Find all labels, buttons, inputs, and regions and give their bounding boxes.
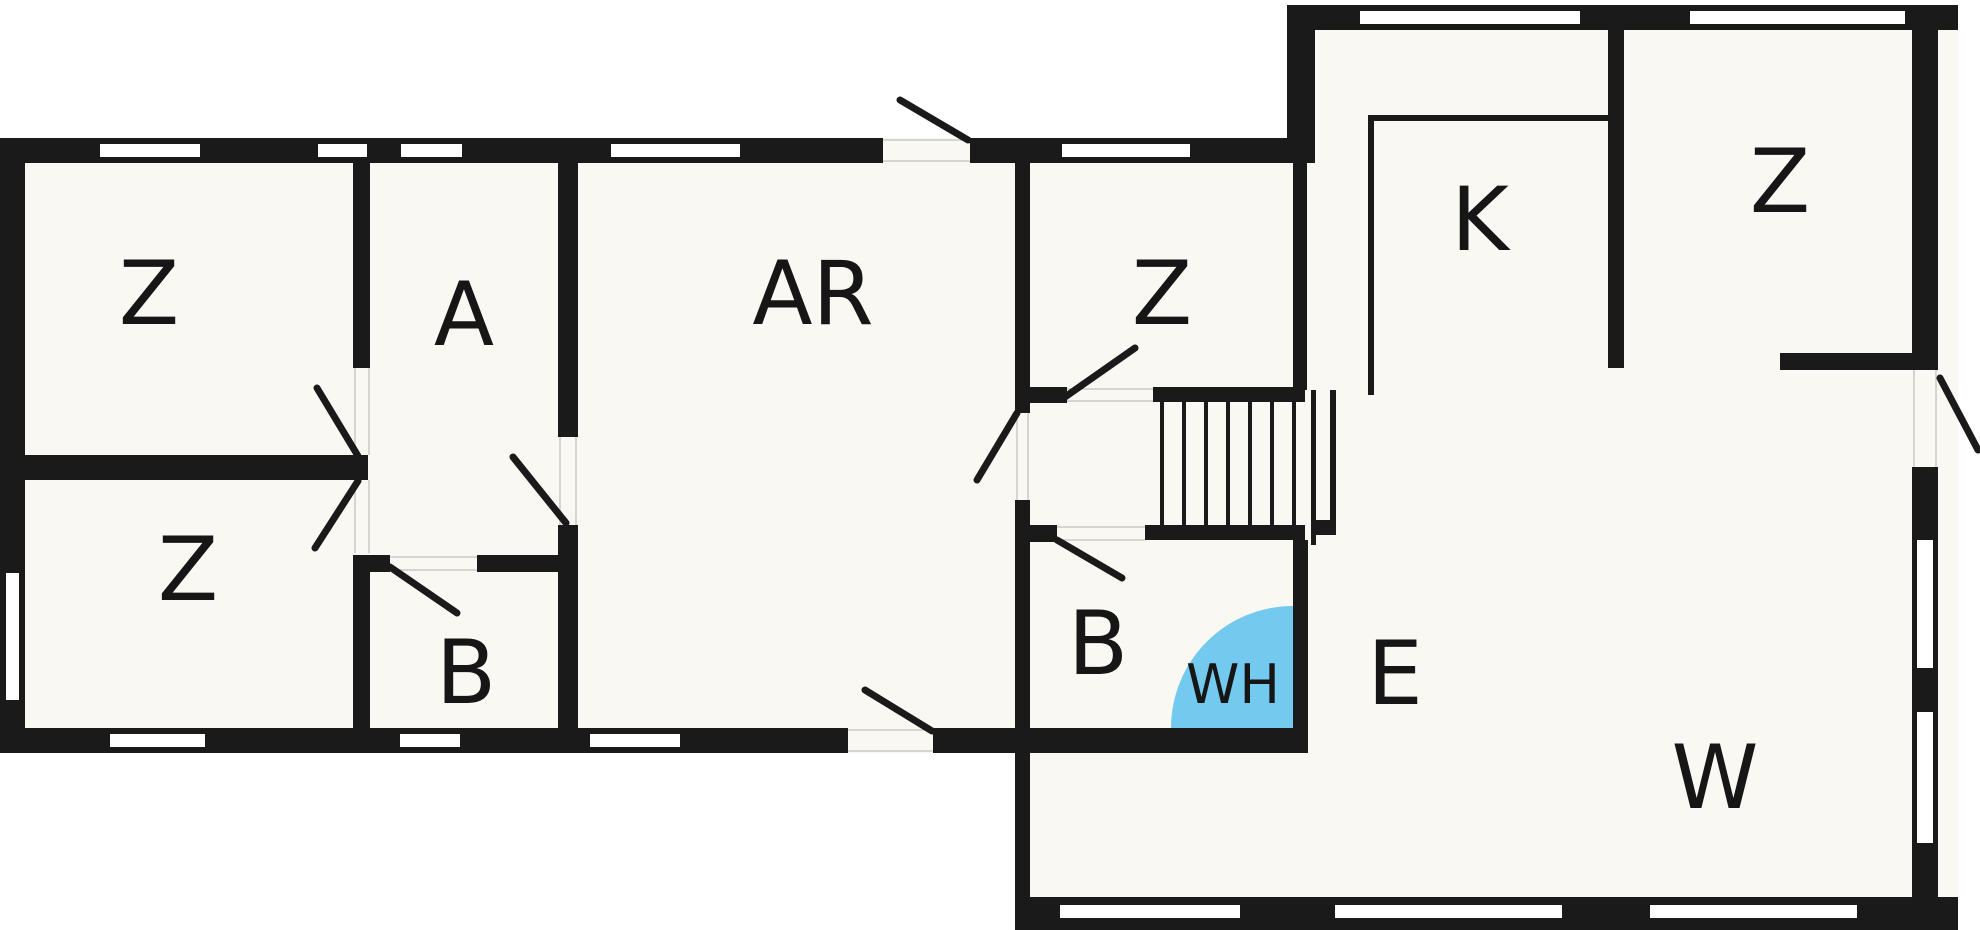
room-label-ar: AR [752,242,873,345]
room-label-z-middle: Z [1132,242,1192,345]
door-front-exterior [900,100,968,140]
floor-plan-canvas: Z Z A AR B Z B K Z E W WH [0,0,1980,930]
room-label-w: W [1671,726,1758,829]
room-label-a: A [434,263,494,366]
room-label-b-right: B [1068,592,1128,695]
floor-plan-svg: Z Z A AR B Z B K Z E W WH [0,0,1980,930]
room-label-k: K [1451,168,1511,271]
room-label-z-bottom-left: Z [158,518,218,621]
water-heater-label: WH [1186,653,1280,716]
room-label-z-top-left: Z [119,242,179,345]
room-label-b-left: B [436,621,496,724]
room-label-e: E [1367,622,1423,725]
room-label-z-top-right: Z [1750,130,1810,233]
